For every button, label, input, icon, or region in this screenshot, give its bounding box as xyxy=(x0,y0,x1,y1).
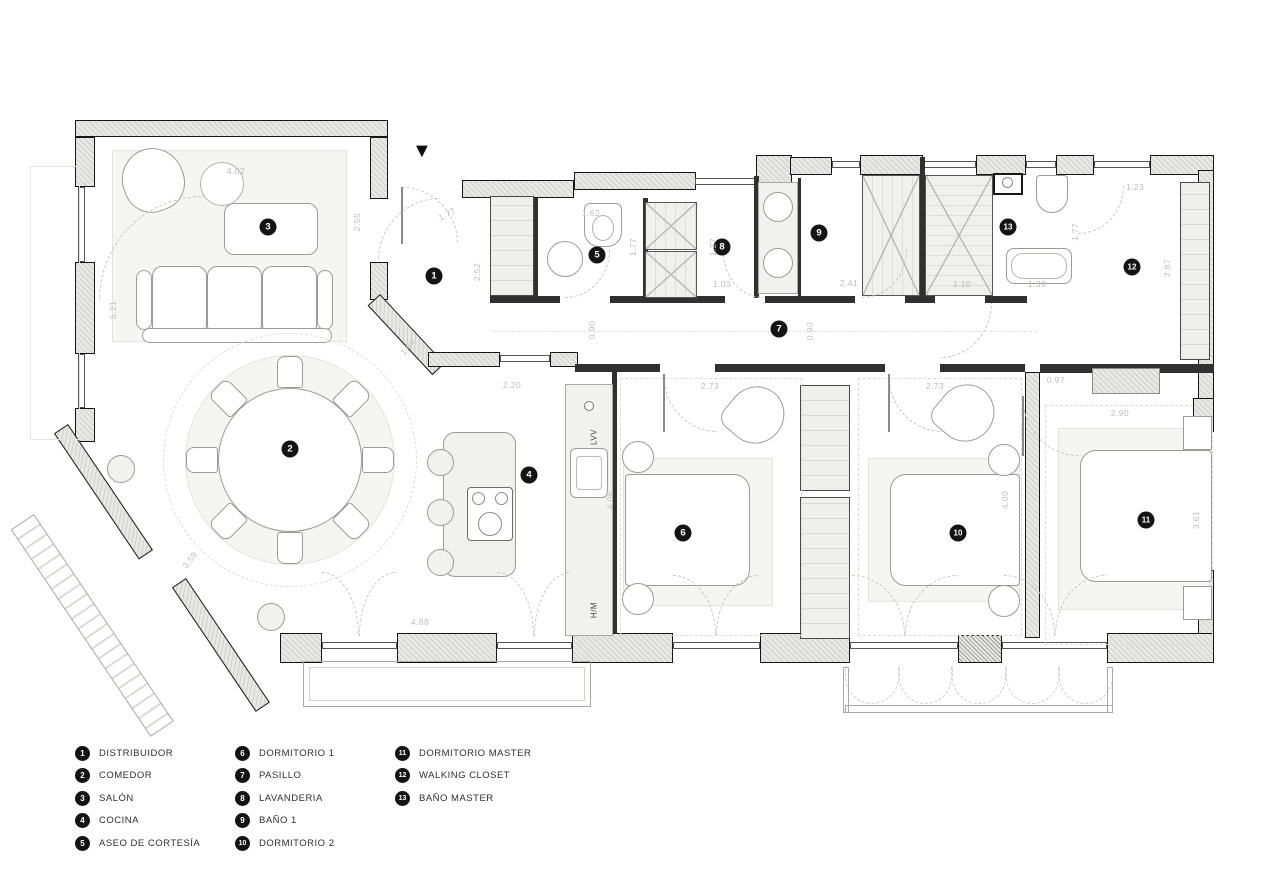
wall-segment xyxy=(860,155,923,175)
nightstand xyxy=(1183,586,1212,620)
legend-badge: 3 xyxy=(75,791,90,806)
window xyxy=(500,355,550,362)
door-arc-distribuidor xyxy=(378,198,440,260)
terrace-railing xyxy=(845,705,1113,713)
sink xyxy=(1036,175,1068,213)
entrance-arrow-icon: ▼ xyxy=(412,141,432,161)
sink-basin xyxy=(576,456,602,490)
dining-chair xyxy=(277,532,303,564)
wardrobe xyxy=(800,497,850,639)
dimension-label: 0.97 xyxy=(1047,375,1065,385)
closet xyxy=(490,196,534,296)
legend-label: WALKING CLOSET xyxy=(419,770,510,781)
wall-segment xyxy=(1092,368,1160,394)
partition xyxy=(490,296,560,303)
room-badge-6: 6 xyxy=(675,525,692,542)
legend-item-9: 9BAÑO 1 xyxy=(235,813,335,828)
stool xyxy=(427,549,454,576)
dimension-label: 2.52 xyxy=(472,263,482,281)
legend-item-11: 11DORMITORIO MASTER xyxy=(395,746,531,761)
wardrobe-walking-closet xyxy=(1180,182,1210,360)
faucet-icon xyxy=(584,401,594,411)
wall-segment xyxy=(280,633,322,663)
legend-label: DORMITORIO 2 xyxy=(259,838,335,849)
legend-label: PASILLO xyxy=(259,770,301,781)
window-swing-arc xyxy=(534,572,571,636)
window xyxy=(695,178,756,185)
window xyxy=(1094,161,1150,168)
door-arc-bano-master xyxy=(1078,186,1124,234)
wall-segment xyxy=(550,352,578,367)
legend-item-4: 4COCINA xyxy=(75,813,200,828)
nightstand xyxy=(622,441,654,473)
dimension-label: 2.73 xyxy=(926,381,944,391)
dimension-label: 2.55 xyxy=(352,213,362,231)
dimension-label: 0.90 xyxy=(587,321,597,339)
room-badge-5: 5 xyxy=(589,247,606,264)
terrace-awning xyxy=(845,666,1114,706)
legend-badge: 1 xyxy=(75,746,90,761)
door-leaf xyxy=(1022,396,1024,456)
burner-icon xyxy=(472,492,485,505)
dining-chair xyxy=(186,447,218,473)
room-badge-1: 1 xyxy=(426,268,443,285)
door-leaf xyxy=(663,374,665,432)
legend-label: DISTRIBUIDOR xyxy=(99,748,173,759)
burner-icon xyxy=(495,492,508,505)
toilet-bowl xyxy=(592,215,614,241)
sink xyxy=(763,192,793,222)
washer-icon xyxy=(645,202,697,250)
stool xyxy=(427,499,454,526)
window xyxy=(850,642,958,649)
wall-segment xyxy=(172,578,270,712)
window xyxy=(923,161,976,168)
dining-chair xyxy=(362,447,394,473)
dimension-label: 0.90 xyxy=(805,322,815,340)
legend-badge: 12 xyxy=(395,768,410,783)
legend-label: LAVANDERIA xyxy=(259,793,323,804)
dimension-label: 1.27 xyxy=(708,238,718,256)
wall-segment xyxy=(976,155,1026,175)
dimension-label: 1.39 xyxy=(1028,279,1046,289)
legend-label: COCINA xyxy=(99,815,139,826)
sofa-seat xyxy=(207,266,262,330)
legend-label: DORMITORIO MASTER xyxy=(419,748,531,759)
wall-segment xyxy=(370,137,388,199)
wall-segment xyxy=(75,120,388,137)
nightstand xyxy=(622,583,654,615)
legend-badge: 8 xyxy=(235,791,250,806)
legend-column-1: 1DISTRIBUIDOR2COMEDOR3SALÓN4COCINA5ASEO … xyxy=(75,746,200,858)
door-arc-lavanderia xyxy=(723,252,763,298)
floor-plan-canvas: ▼ xyxy=(0,0,1264,880)
legend-column-3: 11DORMITORIO MASTER12WALKING CLOSET13BAÑ… xyxy=(395,746,531,813)
dimension-label: 3.59 xyxy=(180,550,199,570)
wall-segment xyxy=(958,635,1002,663)
dimension-label: 4.00 xyxy=(1000,491,1010,509)
column xyxy=(257,603,285,631)
dimension-label: 2.87 xyxy=(1162,259,1172,277)
sofa-armrest xyxy=(317,270,333,330)
dimension-label: 5.21 xyxy=(108,301,118,319)
dimension-label: 1.77 xyxy=(1070,223,1080,241)
legend-item-10: 10DORMITORIO 2 xyxy=(235,836,335,851)
window-swing-arc xyxy=(322,572,359,636)
room-badge-4: 4 xyxy=(521,467,538,484)
stool xyxy=(427,449,454,476)
sofa-seat xyxy=(262,266,317,330)
partition xyxy=(798,178,801,296)
legend-badge: 10 xyxy=(235,836,250,851)
legend-label: BAÑO 1 xyxy=(259,815,297,826)
appliance-label: LVV xyxy=(590,429,599,445)
bathtub-basin xyxy=(1011,253,1067,279)
legend-label: BAÑO MASTER xyxy=(419,793,494,804)
dimension-label: 4.06 xyxy=(605,491,615,509)
legend-label: SALÓN xyxy=(99,793,134,804)
legend-label: DORMITORIO 1 xyxy=(259,748,335,759)
window xyxy=(322,642,397,649)
dimension-label: 2.73 xyxy=(701,381,719,391)
window xyxy=(832,161,860,168)
dimension-label: 2.41 xyxy=(840,278,858,288)
legend-badge: 11 xyxy=(395,746,410,761)
dimension-label: 1.23 xyxy=(1126,182,1144,192)
shower-master xyxy=(925,175,993,296)
window xyxy=(497,642,572,649)
kitchen-counter xyxy=(565,384,613,636)
legend-item-1: 1DISTRIBUIDOR xyxy=(75,746,200,761)
legend-badge: 4 xyxy=(75,813,90,828)
legend-item-7: 7PASILLO xyxy=(235,768,335,783)
dimension-label: 3.61 xyxy=(1191,511,1201,529)
wardrobe xyxy=(800,385,850,491)
terrace-post xyxy=(843,667,849,713)
legend-item-8: 8LAVANDERIA xyxy=(235,791,335,806)
partition xyxy=(940,364,1025,372)
dimension-label: 1.62 xyxy=(582,208,600,218)
dimension-label: 1.03 xyxy=(713,279,731,289)
wall-segment xyxy=(54,424,153,560)
terrace-post xyxy=(1107,667,1113,713)
nightstand xyxy=(1183,416,1212,450)
legend-item-3: 3SALÓN xyxy=(75,791,200,806)
partition xyxy=(765,296,855,303)
column xyxy=(107,455,135,483)
partition xyxy=(985,296,1027,303)
hallway-guide-line xyxy=(492,331,1037,332)
legend-badge: 7 xyxy=(235,768,250,783)
legend-badge: 9 xyxy=(235,813,250,828)
partition xyxy=(575,364,660,372)
legend-badge: 6 xyxy=(235,746,250,761)
room-badge-2: 2 xyxy=(282,441,299,458)
room-badge-11: 11 xyxy=(1138,512,1155,529)
wall-segment xyxy=(1056,155,1094,175)
legend-item-2: 2COMEDOR xyxy=(75,768,200,783)
legend-label: ASEO DE CORTESÍA xyxy=(99,838,200,849)
dimension-label: 4.02 xyxy=(227,166,245,176)
room-badge-9: 9 xyxy=(811,225,828,242)
toilet xyxy=(763,248,793,278)
door-leaf xyxy=(888,374,890,432)
dimension-label: 2.90 xyxy=(1111,408,1129,418)
partition xyxy=(715,364,885,372)
room-badge-3: 3 xyxy=(260,219,277,236)
wall-segment xyxy=(572,633,673,663)
legend-badge: 13 xyxy=(395,791,410,806)
room-badge-10: 10 xyxy=(950,525,967,542)
legend-badge: 5 xyxy=(75,836,90,851)
partition xyxy=(905,296,935,303)
room-badge-7: 7 xyxy=(771,321,788,338)
legend-item-12: 12WALKING CLOSET xyxy=(395,768,531,783)
balcony-left-inner xyxy=(309,667,585,701)
wall-segment xyxy=(397,633,497,663)
wall-segment xyxy=(574,172,696,190)
dimension-label: 2.20 xyxy=(503,380,521,390)
dryer-icon xyxy=(645,251,697,298)
legend-item-5: 5ASEO DE CORTESÍA xyxy=(75,836,200,851)
window-swing-arc xyxy=(359,572,396,636)
drain-icon xyxy=(1002,177,1013,188)
window xyxy=(1026,161,1056,168)
room-badge-13: 13 xyxy=(1000,219,1017,236)
legend-label: COMEDOR xyxy=(99,770,152,781)
wall-segment xyxy=(428,352,500,367)
dimension-label: 1.77 xyxy=(628,238,638,256)
wall-segment xyxy=(790,157,832,175)
dining-chair xyxy=(277,356,303,388)
dimension-label: 4.88 xyxy=(411,617,429,627)
nightstand xyxy=(988,444,1020,476)
legend-column-2: 6DORMITORIO 17PASILLO8LAVANDERIA9BAÑO 11… xyxy=(235,746,335,858)
dimension-label: 1.10 xyxy=(953,279,971,289)
room-badge-12: 12 xyxy=(1124,259,1141,276)
legend-item-6: 6DORMITORIO 1 xyxy=(235,746,335,761)
burner-icon xyxy=(478,512,502,536)
neighbor-outline xyxy=(30,166,80,440)
appliance-label: H/M xyxy=(590,602,599,618)
legend-badge: 2 xyxy=(75,768,90,783)
window xyxy=(673,642,760,649)
legend-item-13: 13BAÑO MASTER xyxy=(395,791,531,806)
window-swing-arc xyxy=(497,572,534,636)
